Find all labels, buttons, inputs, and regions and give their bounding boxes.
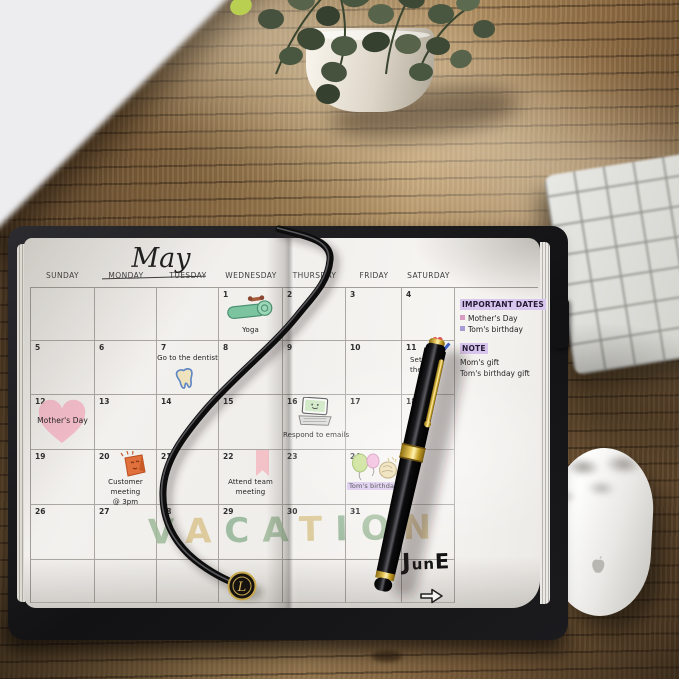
calendar-cell-may-12: 12 Mother's Day bbox=[30, 395, 95, 450]
weekday-label: THURSDAY bbox=[283, 271, 346, 280]
calendar-cell: 10 bbox=[346, 341, 402, 395]
calendar-cell: 23 bbox=[283, 450, 346, 505]
calendar-cell: 6 bbox=[95, 341, 157, 395]
calendar-cell bbox=[30, 560, 95, 603]
important-dates-title: IMPORTANT DATES bbox=[460, 299, 546, 310]
calendar-cell bbox=[95, 560, 157, 603]
weekday-label-spacer bbox=[455, 271, 538, 280]
calendar-cell: 14 bbox=[157, 395, 219, 450]
calendar-cell: 15 bbox=[219, 395, 283, 450]
yoga-mat-doodle bbox=[225, 295, 279, 323]
calendar-cell-may-1: 1 Yoga bbox=[219, 287, 283, 341]
calendar-cell: 26 bbox=[30, 505, 95, 560]
calendar-cell-may-24: 24 Tom's birthday bbox=[346, 450, 402, 505]
small-heart-doodle bbox=[432, 337, 443, 347]
june-handwriting: JunE bbox=[402, 548, 451, 576]
weekday-label: FRIDAY bbox=[346, 271, 402, 280]
balloons-doodle bbox=[350, 453, 398, 481]
laptop-doodle bbox=[296, 397, 334, 429]
calendar-cell bbox=[157, 560, 219, 603]
calendar-cell: 25 bbox=[402, 450, 455, 505]
right-arrow-doodle bbox=[420, 588, 444, 604]
important-date-item: Tom's birthday bbox=[460, 325, 538, 334]
weekday-label: SUNDAY bbox=[30, 271, 95, 280]
tooth-doodle bbox=[170, 363, 200, 393]
calendar-cell: 4 bbox=[402, 287, 455, 341]
notebook-pen-loop bbox=[552, 298, 569, 348]
bullet-square-icon bbox=[460, 326, 465, 331]
calendar-cell bbox=[95, 287, 157, 341]
calendar-cell: 5 bbox=[30, 341, 95, 395]
vacation-handwriting: VACATION bbox=[148, 507, 445, 552]
calendar-cell: 18 bbox=[402, 395, 455, 450]
plant-leaves bbox=[216, 0, 496, 114]
calendar-cell: 3 bbox=[346, 287, 402, 341]
calendar-cell-may-7: 7 Go to the dentist bbox=[157, 341, 219, 395]
calendar-cell bbox=[30, 287, 95, 341]
calendar-cell bbox=[346, 560, 402, 603]
weekday-label: MONDAY bbox=[95, 271, 157, 280]
note-title: NOTE bbox=[460, 343, 488, 354]
pink-ribbon-doodle bbox=[256, 450, 269, 476]
note-item: Tom's birthday gift bbox=[460, 369, 538, 378]
page-stack-right bbox=[540, 242, 550, 604]
calendar-cell: 19 bbox=[30, 450, 95, 505]
calendar-cell: 13 bbox=[95, 395, 157, 450]
calendar-cell-may-16: 16 Respond to emails bbox=[283, 395, 346, 450]
apple-logo-icon bbox=[590, 555, 607, 574]
month-title: May bbox=[98, 243, 224, 274]
calendar-cell bbox=[157, 287, 219, 341]
desk-photo: May SUNDAY MONDAY TUESDAY WEDNESDAY THUR… bbox=[0, 0, 679, 679]
calendar-cell-may-22: 22 Attend team meeting bbox=[219, 450, 283, 505]
calendar-cell: 2 bbox=[283, 287, 346, 341]
calendar-cell-may-11: 11 Set g the bbox=[402, 341, 455, 395]
sticky-note-doodle bbox=[119, 450, 149, 478]
calendar-cell bbox=[219, 560, 283, 603]
calendar-cell: 17 bbox=[346, 395, 402, 450]
calendar-cell: 8 bbox=[219, 341, 283, 395]
calendar-cell-may-20: 20 Customer meeting @ 3pm bbox=[95, 450, 157, 505]
weekday-label: WEDNESDAY bbox=[219, 271, 283, 280]
note-item: Mom's gift bbox=[460, 358, 538, 367]
calendar-cell: 21 bbox=[157, 450, 219, 505]
weekday-label: TUESDAY bbox=[157, 271, 219, 280]
weekday-header-row: SUNDAY MONDAY TUESDAY WEDNESDAY THURSDAY… bbox=[30, 271, 538, 280]
calendar-cell: 9 bbox=[283, 341, 346, 395]
calendar-grid: IMPORTANT DATES Mother's Day Tom's birth… bbox=[30, 287, 538, 603]
bullet-square-icon bbox=[460, 315, 465, 320]
calendar-cell bbox=[283, 560, 346, 603]
weekday-label: SATURDAY bbox=[402, 271, 455, 280]
important-date-item: Mother's Day bbox=[460, 314, 538, 323]
sidebar-notes: IMPORTANT DATES Mother's Day Tom's birth… bbox=[455, 287, 538, 603]
